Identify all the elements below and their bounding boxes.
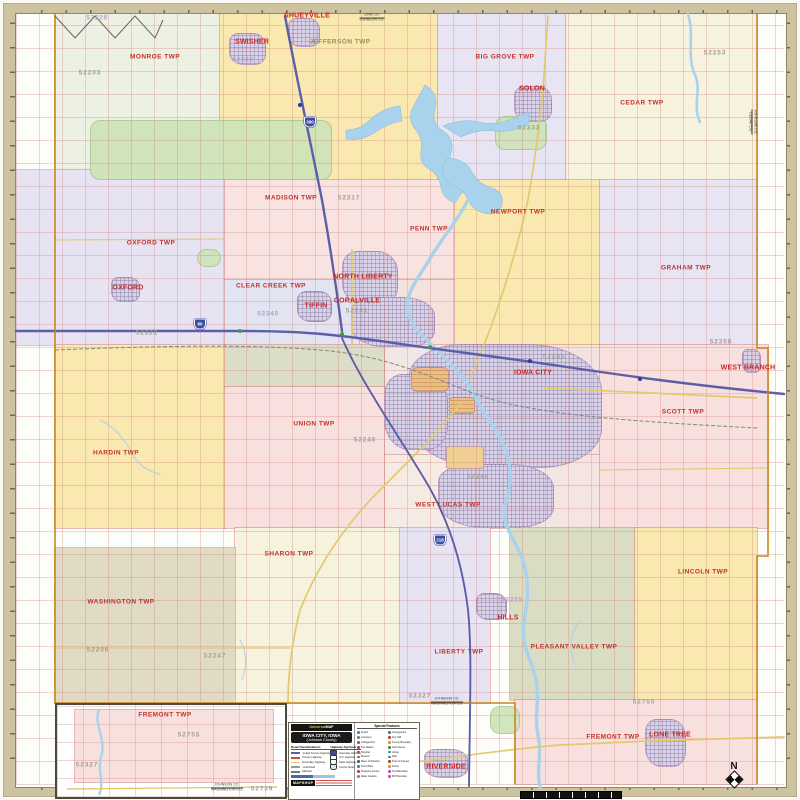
highway-shield-icon (330, 764, 337, 770)
special-feature-label: Museum (361, 755, 371, 758)
special-feature-label: Place of Worship (361, 760, 380, 763)
road-class-label: Local Road (302, 766, 316, 769)
road-class-swatch (291, 762, 300, 764)
inset-grid (57, 705, 285, 797)
legend-scale-bar (291, 775, 335, 778)
legend-left-panel: UniversalMAP IOWA CITY, IOWA (Johnson Co… (289, 723, 355, 799)
road-class-label: Railroad (302, 770, 312, 773)
special-feature-marker-icon (357, 756, 360, 759)
wall-map-sheet: MONROE TWPJEFFERSON TWPBIG GROVE TWPCEDA… (0, 0, 800, 800)
fremont-inset-map: FREMONT TWP527555232752739JOHNSON CO.WAS… (55, 703, 287, 799)
region-hardin-twp (55, 345, 225, 528)
road-class-swatch (291, 771, 300, 773)
special-features-header: Special Features (357, 724, 417, 729)
special-feature-label: Twp Boundary (392, 770, 408, 773)
special-feature-row: ZIP Boundary (388, 774, 417, 779)
compass-diamond-icon (725, 770, 743, 788)
iowa-city-urban-c (438, 464, 554, 528)
region-union-twp (225, 387, 385, 528)
solon-urban (514, 86, 552, 122)
special-feature-marker-icon (357, 736, 360, 739)
interstate-218-shield-icon: 218 (434, 535, 446, 546)
region-madison-twp (225, 180, 455, 280)
special-feature-label: Golf Course (392, 746, 405, 749)
special-feature-label: Campground (392, 731, 406, 734)
region-newport-twp (455, 180, 600, 345)
road-class-label: Limited Access Highway (302, 752, 331, 755)
special-feature-label: County Boundary (392, 741, 411, 744)
oxford-urban (111, 277, 140, 302)
kent-park (197, 249, 221, 267)
campus-east (449, 397, 475, 414)
region-pleasant-valley-twp (510, 528, 635, 700)
road-class-row: Railroad (291, 769, 330, 774)
river-junction-green (490, 706, 520, 734)
special-feature-label: Library (392, 751, 400, 754)
special-feature-label: City Hall (392, 736, 401, 739)
region-cedar-twp (566, 14, 757, 180)
road-classifications-column: Road Classifications Limited Access High… (291, 745, 330, 774)
map-legend: UniversalMAP IOWA CITY, IOWA (Johnson Co… (288, 722, 420, 800)
tiffin-urban (297, 291, 332, 322)
special-feature-label: Post Office (361, 765, 373, 768)
west-branch-urban (742, 349, 761, 373)
legend-title: IOWA CITY, IOWA (Johnson County) (291, 732, 352, 743)
special-feature-label: Airport (361, 731, 368, 734)
region-liberty-twp (400, 528, 490, 703)
interstate-380-shield-icon: 380 (304, 117, 316, 128)
special-feature-marker-icon (357, 746, 360, 749)
special-feature-marker-icon (388, 731, 391, 734)
special-feature-label: School (392, 765, 400, 768)
legend-publisher-text (316, 779, 352, 786)
special-feature-label: Cemetery (361, 736, 372, 739)
road-class-swatch (291, 757, 300, 759)
legend-title-line2: (Johnson County) (291, 738, 352, 742)
special-features-grid: AirportCampgroundCemeteryCity HallColleg… (357, 730, 417, 779)
region-scott-twp (600, 345, 768, 528)
road-class-swatch (291, 752, 300, 754)
region-fremont-twp (515, 700, 757, 784)
road-classifications-header: Road Classifications (291, 745, 330, 750)
highway-symbol-label: State Highway (339, 761, 356, 764)
special-feature-marker-icon (388, 746, 391, 749)
special-feature-row: Water Feature (357, 774, 386, 779)
mapshop-logo: MAPSHOP (291, 780, 315, 786)
special-feature-label: Hospital (361, 751, 370, 754)
lone-tree-urban (645, 719, 686, 767)
special-feature-marker-icon (388, 775, 391, 778)
special-feature-label: Fire Station (361, 746, 374, 749)
map-scale-bar (520, 791, 622, 799)
special-feature-marker-icon (357, 741, 360, 744)
special-feature-marker-icon (357, 731, 360, 734)
region-sharon-twp (235, 528, 400, 703)
region-graham-twp (600, 180, 757, 345)
special-feature-marker-icon (388, 736, 391, 739)
region-lincoln-twp (635, 528, 757, 700)
special-feature-marker-icon (357, 770, 360, 773)
hawkeye-wildlife-area (90, 120, 332, 180)
universal-map-logo: UniversalMAP (291, 724, 352, 731)
special-feature-label: Park (392, 755, 397, 758)
road-class-label: Primary Highway (302, 756, 322, 759)
special-feature-marker-icon (357, 765, 360, 768)
special-feature-label: ZIP Boundary (392, 775, 407, 778)
special-feature-marker-icon (357, 775, 360, 778)
special-feature-marker-icon (388, 751, 391, 754)
hills-urban (476, 593, 507, 620)
special-feature-marker-icon (357, 751, 360, 754)
road-class-swatch (291, 766, 300, 768)
highway-symbol-label: U.S. Highway (339, 756, 355, 759)
region-clear-creek-twp (225, 280, 360, 345)
special-feature-label: Point of Interest (392, 760, 410, 763)
riverside-urban (424, 749, 468, 778)
north-arrow: N (724, 762, 744, 786)
road-class-label: Secondary Highway (302, 761, 326, 764)
special-feature-marker-icon (388, 760, 391, 763)
swisher-urban (229, 33, 266, 65)
special-feature-label: College/Univ. (361, 741, 376, 744)
special-features-panel: Special Features AirportCampgroundCemete… (355, 723, 419, 799)
special-feature-label: Shopping Center (361, 770, 380, 773)
special-feature-marker-icon (388, 770, 391, 773)
highway-symbol-label: County Road (339, 766, 355, 769)
region-washington-twp (55, 548, 235, 703)
coralville-urban (351, 297, 435, 347)
special-feature-marker-icon (388, 756, 391, 759)
university-campus (411, 367, 449, 392)
special-feature-marker-icon (388, 741, 391, 744)
iowa-city-airport (446, 446, 484, 469)
interstate-80-shield-icon: 80 (194, 319, 206, 330)
shueyville-urban (288, 18, 320, 47)
special-feature-marker-icon (388, 765, 391, 768)
region-clear-creek-olive (225, 345, 385, 387)
special-feature-label: Water Feature (361, 775, 377, 778)
special-feature-marker-icon (357, 760, 360, 763)
